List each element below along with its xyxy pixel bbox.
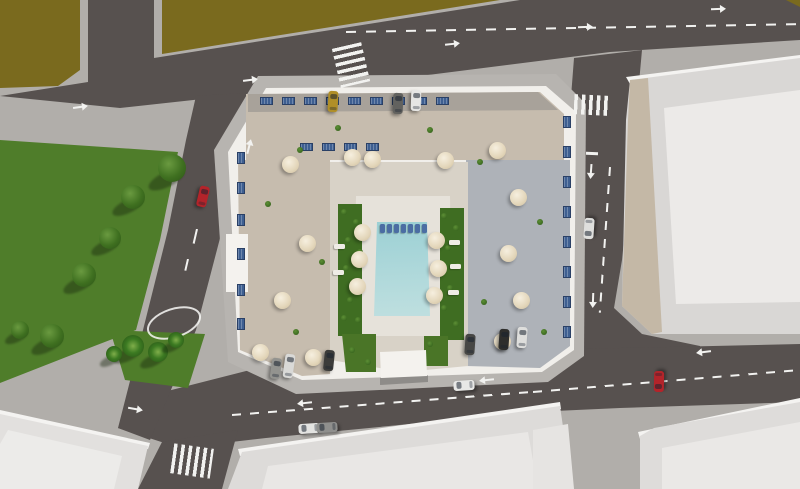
solar-panel bbox=[563, 176, 571, 188]
shrub bbox=[541, 329, 547, 335]
solar-panel bbox=[563, 236, 571, 248]
car bbox=[270, 357, 283, 379]
solar-panel bbox=[370, 97, 383, 105]
solar-panel bbox=[563, 266, 571, 278]
car bbox=[654, 370, 664, 391]
shrub bbox=[341, 209, 347, 215]
solar-panel bbox=[237, 318, 245, 330]
parasol-umbrella bbox=[354, 224, 371, 241]
parasol-umbrella bbox=[489, 142, 506, 159]
parasol-umbrella bbox=[252, 344, 269, 361]
parasol-umbrella bbox=[282, 156, 299, 173]
shrub bbox=[347, 297, 353, 303]
car-rear-window bbox=[198, 200, 205, 204]
shrub bbox=[537, 219, 543, 225]
solar-panel bbox=[282, 97, 295, 105]
sun-lounger bbox=[387, 224, 392, 233]
sun-lounger bbox=[408, 224, 413, 233]
parasol-umbrella bbox=[426, 287, 443, 304]
tree bbox=[158, 154, 186, 182]
tree bbox=[40, 324, 64, 348]
car-rear-window bbox=[586, 220, 593, 223]
shrub bbox=[441, 305, 447, 311]
shrub bbox=[427, 127, 433, 133]
shrub bbox=[341, 315, 347, 321]
car bbox=[323, 349, 335, 371]
car-rear-window bbox=[329, 106, 336, 109]
parasol-umbrella bbox=[513, 292, 530, 309]
parasol-umbrella bbox=[500, 245, 517, 262]
car-windshield bbox=[655, 383, 662, 388]
car-windshield bbox=[467, 336, 474, 341]
shrub bbox=[319, 259, 325, 265]
shrub bbox=[297, 147, 303, 153]
parasol-umbrella bbox=[437, 152, 454, 169]
car-windshield bbox=[326, 352, 333, 358]
palm-tree bbox=[122, 335, 144, 357]
solar-panel bbox=[348, 97, 361, 105]
car-rear-window bbox=[332, 423, 335, 430]
solar-panel bbox=[366, 143, 379, 151]
sun-lounger bbox=[450, 264, 461, 269]
parasol-umbrella bbox=[430, 260, 447, 277]
car-rear-window bbox=[394, 108, 401, 111]
car-rear-window bbox=[466, 349, 473, 352]
shrub bbox=[365, 359, 371, 365]
solar-panel bbox=[304, 97, 317, 105]
shrub bbox=[453, 225, 459, 231]
sun-lounger bbox=[415, 224, 420, 233]
sun-lounger bbox=[401, 224, 406, 233]
palm-tree bbox=[168, 332, 184, 348]
car-windshield bbox=[395, 95, 402, 100]
tree bbox=[99, 227, 121, 249]
shrub bbox=[355, 317, 361, 323]
shrub bbox=[441, 213, 447, 219]
parasol-umbrella bbox=[274, 292, 291, 309]
solar-panel bbox=[260, 97, 273, 105]
car bbox=[453, 379, 475, 390]
sun-lounger bbox=[394, 224, 399, 233]
shrub bbox=[445, 245, 451, 251]
shrub bbox=[335, 125, 341, 131]
car-windshield bbox=[301, 425, 306, 432]
parasol-umbrella bbox=[349, 278, 366, 295]
sun-lounger bbox=[380, 224, 385, 233]
solar-panel bbox=[237, 182, 245, 194]
car bbox=[516, 326, 527, 348]
solar-panel bbox=[563, 326, 571, 338]
sun-lounger bbox=[448, 290, 459, 295]
sun-lounger bbox=[449, 240, 460, 245]
tree bbox=[121, 185, 145, 209]
car-rear-window bbox=[656, 373, 663, 376]
shrub bbox=[453, 321, 459, 327]
car bbox=[316, 421, 338, 432]
car-rear-window bbox=[325, 365, 332, 369]
car-windshield bbox=[286, 357, 294, 363]
car bbox=[393, 92, 404, 113]
car bbox=[498, 328, 509, 350]
solar-panel bbox=[237, 214, 245, 226]
solar-panel bbox=[563, 146, 571, 158]
car-windshield bbox=[519, 329, 526, 334]
car-windshield bbox=[456, 382, 461, 389]
car-windshield bbox=[585, 230, 592, 235]
sun-lounger bbox=[334, 244, 345, 249]
solar-panel bbox=[237, 248, 245, 260]
shrub bbox=[265, 201, 271, 207]
car bbox=[327, 90, 338, 111]
car-rear-window bbox=[271, 372, 278, 376]
car bbox=[196, 185, 210, 208]
tree bbox=[11, 321, 29, 339]
parasol-umbrella bbox=[344, 149, 361, 166]
sun-lounger bbox=[333, 270, 344, 275]
car-windshield bbox=[501, 331, 508, 336]
aerial-render-scene bbox=[0, 0, 800, 489]
palm-tree bbox=[106, 346, 122, 362]
solar-panel bbox=[436, 97, 449, 105]
car-rear-window bbox=[469, 381, 472, 388]
car-windshield bbox=[200, 188, 208, 194]
parasol-umbrella bbox=[305, 349, 322, 366]
props-layer bbox=[0, 0, 800, 489]
solar-panel bbox=[563, 296, 571, 308]
car bbox=[411, 89, 422, 110]
car-windshield bbox=[413, 92, 420, 97]
car bbox=[282, 353, 295, 378]
shrub bbox=[345, 237, 351, 243]
parasol-umbrella bbox=[299, 235, 316, 252]
shrub bbox=[293, 329, 299, 335]
solar-panel bbox=[322, 143, 335, 151]
car-rear-window bbox=[412, 105, 419, 108]
car bbox=[464, 333, 475, 355]
parasol-umbrella bbox=[510, 189, 527, 206]
car-rear-window bbox=[500, 344, 507, 347]
parasol-umbrella bbox=[428, 232, 445, 249]
parasol-umbrella bbox=[364, 151, 381, 168]
shrub bbox=[477, 159, 483, 165]
sun-lounger bbox=[422, 224, 427, 233]
car-windshield bbox=[273, 360, 281, 366]
parasol-umbrella bbox=[351, 251, 368, 268]
tree bbox=[72, 263, 96, 287]
car bbox=[583, 217, 594, 239]
car-windshield bbox=[330, 93, 337, 98]
solar-panel bbox=[563, 206, 571, 218]
solar-panel bbox=[237, 284, 245, 296]
solar-panel bbox=[563, 116, 571, 128]
shrub bbox=[349, 347, 355, 353]
car-windshield bbox=[319, 424, 324, 431]
car-rear-window bbox=[518, 342, 525, 345]
shrub bbox=[427, 341, 433, 347]
shrub bbox=[481, 299, 487, 305]
car-rear-window bbox=[284, 372, 291, 376]
solar-panel bbox=[237, 152, 245, 164]
